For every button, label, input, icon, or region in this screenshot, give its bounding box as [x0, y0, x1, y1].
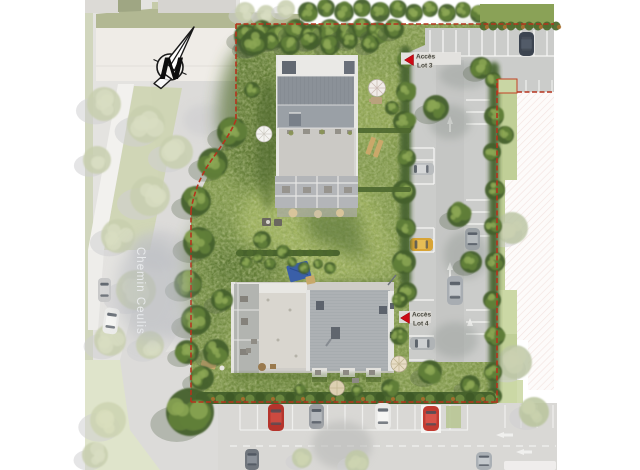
svg-text:Lot 4: Lot 4: [413, 321, 429, 328]
svg-text:Accès: Accès: [412, 312, 432, 319]
svg-text:Chemin Ceulis: Chemin Ceulis: [134, 247, 146, 335]
svg-text:Accès: Accès: [416, 54, 436, 61]
svg-text:Lot 3: Lot 3: [417, 63, 433, 70]
